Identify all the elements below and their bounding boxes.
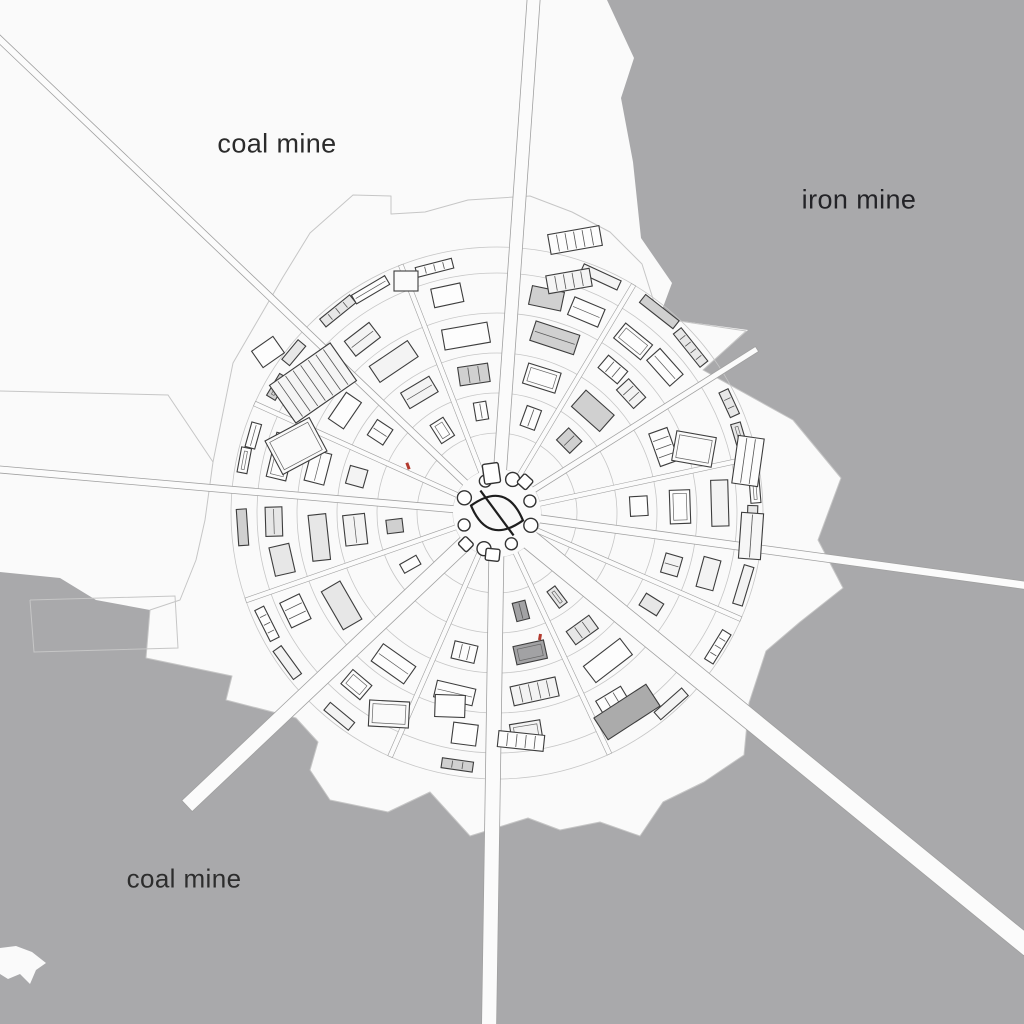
plaza-circle — [458, 519, 470, 531]
building — [738, 512, 763, 559]
label-coal-mine-top: coal mine — [217, 129, 336, 160]
plaza-circle — [457, 491, 471, 505]
plaza-circle — [524, 495, 536, 507]
building — [672, 431, 717, 467]
plaza-circle — [505, 538, 517, 550]
label-iron-mine: iron mine — [802, 185, 917, 216]
building — [343, 513, 368, 546]
building — [435, 694, 466, 717]
building — [473, 401, 488, 421]
building — [669, 490, 690, 524]
building — [236, 509, 248, 546]
building — [711, 480, 729, 526]
mine-city-map: coal mine iron mine coal mine — [0, 0, 1024, 1024]
building — [458, 363, 491, 386]
plaza-circle — [506, 472, 520, 486]
plaza-rect — [482, 462, 501, 484]
building — [386, 518, 404, 533]
building — [394, 271, 418, 291]
building — [265, 507, 283, 537]
building — [368, 700, 409, 728]
plaza-circle — [524, 518, 538, 532]
label-coal-mine-bottom: coal mine — [127, 864, 242, 895]
plaza-rect — [485, 548, 500, 561]
building — [629, 496, 648, 517]
building — [451, 722, 478, 746]
